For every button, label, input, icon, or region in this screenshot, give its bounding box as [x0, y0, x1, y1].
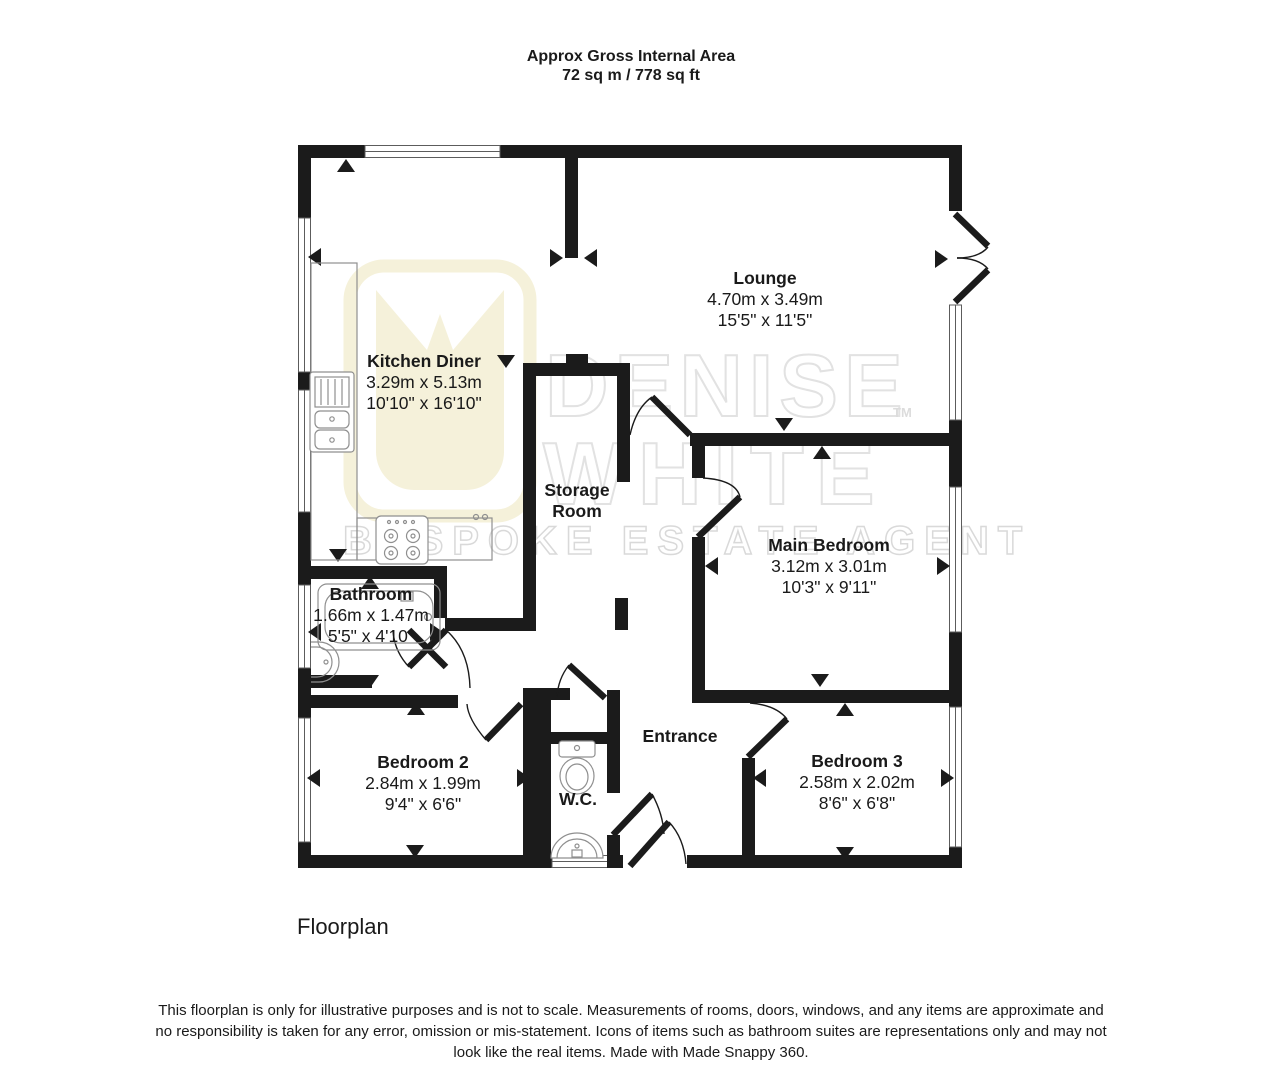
- wall: [607, 835, 620, 868]
- room-dim-imperial: 5'5" x 4'10": [313, 626, 429, 647]
- wall: [523, 695, 551, 868]
- window: [950, 305, 962, 420]
- kitchen-sink-icon: [310, 372, 354, 452]
- room-dim-imperial: 10'10" x 16'10": [366, 393, 482, 414]
- measure-arrow: [813, 446, 831, 459]
- room-name: Storage: [544, 480, 609, 501]
- wall: [565, 158, 578, 258]
- title-block: Approx Gross Internal Area 72 sq m / 778…: [331, 47, 931, 85]
- room-label-bedroom2: Bedroom 2 2.84m x 1.99m 9'4" x 6'6": [365, 752, 481, 815]
- room-label-entrance: Entrance: [643, 726, 718, 747]
- wall: [298, 566, 447, 579]
- measure-arrow: [584, 249, 597, 267]
- window: [299, 718, 311, 842]
- floorplan-drawing: [0, 0, 1261, 1080]
- title-line1: Approx Gross Internal Area: [331, 47, 931, 66]
- measure-arrow: [337, 159, 355, 172]
- measure-arrow: [775, 418, 793, 431]
- measure-arrow: [497, 355, 515, 368]
- room-label-bedroom3: Bedroom 3 2.58m x 2.02m 8'6" x 6'8": [799, 751, 915, 814]
- room-dim-imperial: 9'4" x 6'6": [365, 794, 481, 815]
- room-name: Entrance: [643, 726, 718, 747]
- room-dim-imperial: 10'3" x 9'11": [768, 577, 890, 598]
- measure-arrow: [550, 249, 563, 267]
- wc-basin-icon: [551, 833, 603, 858]
- room-label-lounge: Lounge 4.70m x 3.49m 15'5" x 11'5": [707, 268, 823, 331]
- wall: [298, 695, 458, 708]
- room-label-wc: W.C.: [559, 789, 597, 810]
- room-name: Lounge: [707, 268, 823, 289]
- window: [950, 487, 962, 632]
- measure-arrow: [811, 674, 829, 687]
- wall: [690, 433, 962, 446]
- room-dim-metric: 1.66m x 1.47m: [313, 605, 429, 626]
- wall: [298, 675, 372, 688]
- toilet-icon: [559, 741, 595, 794]
- room-name: Main Bedroom: [768, 535, 890, 556]
- wall: [523, 363, 536, 630]
- window: [365, 146, 500, 158]
- room-name: Kitchen Diner: [366, 351, 482, 372]
- room-dim-imperial: 8'6" x 6'8": [799, 793, 915, 814]
- wall: [742, 758, 755, 868]
- room-name: Bathroom: [313, 584, 429, 605]
- room-dim-metric: 3.12m x 3.01m: [768, 556, 890, 577]
- wall: [617, 363, 630, 482]
- measure-arrow: [935, 250, 948, 268]
- title-line2: 72 sq m / 778 sq ft: [331, 66, 931, 85]
- window: [299, 585, 311, 668]
- wall: [445, 618, 536, 631]
- wall: [693, 690, 962, 703]
- disclaimer-text: This floorplan is only for illustrative …: [151, 1000, 1111, 1063]
- room-label-bathroom: Bathroom 1.66m x 1.47m 5'5" x 4'10": [313, 584, 429, 647]
- room-name: Room: [544, 501, 609, 522]
- wall: [692, 433, 705, 478]
- window: [299, 218, 311, 372]
- window: [299, 390, 311, 512]
- room-dim-metric: 2.58m x 2.02m: [799, 772, 915, 793]
- measure-arrow: [836, 703, 854, 716]
- room-label-main-bedroom: Main Bedroom 3.12m x 3.01m 10'3" x 9'11": [768, 535, 890, 598]
- floorplan-caption: Floorplan: [297, 914, 389, 940]
- room-name: W.C.: [559, 789, 597, 810]
- room-dim-imperial: 15'5" x 11'5": [707, 310, 823, 331]
- floorplan-page: DENISE WHITE TM BESPOKE ESTATE AGENT: [0, 0, 1261, 1080]
- wall: [615, 598, 628, 630]
- hob-icon: [376, 516, 428, 564]
- wall: [523, 363, 630, 376]
- wall: [607, 690, 620, 793]
- wall: [692, 537, 705, 703]
- room-name: Bedroom 2: [365, 752, 481, 773]
- measure-arrow: [937, 557, 950, 575]
- room-dim-metric: 3.29m x 5.13m: [366, 372, 482, 393]
- room-dim-metric: 2.84m x 1.99m: [365, 773, 481, 794]
- room-label-storage: Storage Room: [544, 480, 609, 522]
- room-dim-metric: 4.70m x 3.49m: [707, 289, 823, 310]
- room-label-kitchen: Kitchen Diner 3.29m x 5.13m 10'10" x 16'…: [366, 351, 482, 414]
- room-name: Bedroom 3: [799, 751, 915, 772]
- measure-arrow: [705, 557, 718, 575]
- wall: [566, 354, 588, 363]
